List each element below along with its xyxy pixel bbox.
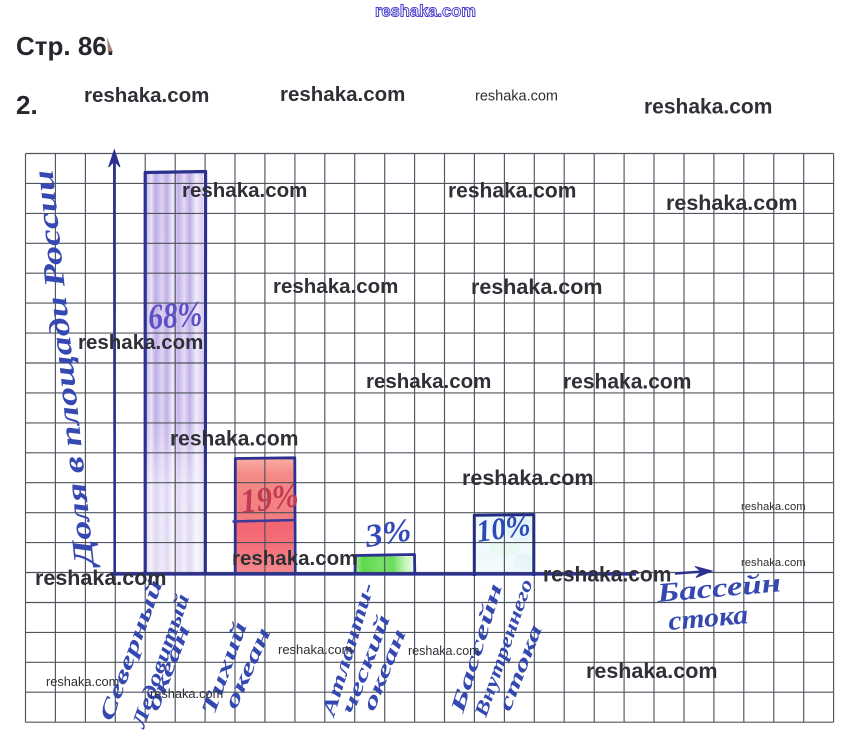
svg-text:reshaka.com: reshaka.com — [232, 547, 357, 570]
svg-text:reshaka.com: reshaka.com — [280, 83, 405, 106]
svg-text:reshaka.com: reshaka.com — [475, 88, 558, 104]
svg-text:10%: 10% — [474, 507, 532, 549]
svg-text:reshaka.com: reshaka.com — [150, 686, 223, 701]
svg-text:reshaka.com: reshaka.com — [586, 659, 717, 683]
svg-text:reshaka.com: reshaka.com — [273, 275, 398, 298]
svg-text:reshaka.com: reshaka.com — [366, 370, 491, 393]
svg-text:reshaka.com: reshaka.com — [35, 566, 166, 590]
svg-text:reshaka.com: reshaka.com — [471, 275, 602, 299]
svg-text:reshaka.com: reshaka.com — [741, 501, 806, 513]
svg-text:reshaka.com: reshaka.com — [462, 466, 593, 490]
svg-text:2.: 2. — [16, 90, 38, 120]
svg-text:reshaka.com: reshaka.com — [448, 179, 576, 202]
svg-text:reshaka.com: reshaka.com — [375, 2, 476, 21]
svg-text:reshaka.com: reshaka.com — [543, 563, 671, 586]
svg-text:reshaka.com: reshaka.com — [278, 642, 352, 657]
svg-text:reshaka.com: reshaka.com — [78, 331, 203, 354]
svg-text:стока: стока — [667, 599, 749, 636]
svg-text:reshaka.com: reshaka.com — [408, 644, 480, 658]
svg-text:reshaka.com: reshaka.com — [666, 191, 797, 215]
svg-text:reshaka.com: reshaka.com — [46, 674, 119, 689]
svg-text:reshaka.com: reshaka.com — [741, 557, 806, 569]
svg-text:reshaka.com: reshaka.com — [563, 370, 691, 393]
svg-text:reshaka.com: reshaka.com — [182, 179, 307, 202]
svg-text:reshaka.com: reshaka.com — [84, 84, 209, 107]
svg-text:Стр. 86.: Стр. 86. — [16, 31, 114, 61]
svg-text:reshaka.com: reshaka.com — [170, 427, 298, 450]
svg-text:3%: 3% — [361, 511, 413, 554]
svg-text:19%: 19% — [238, 477, 300, 521]
svg-text:reshaka.com: reshaka.com — [644, 95, 772, 118]
svg-text:Доля в площади России: Доля в площади России — [28, 168, 102, 571]
